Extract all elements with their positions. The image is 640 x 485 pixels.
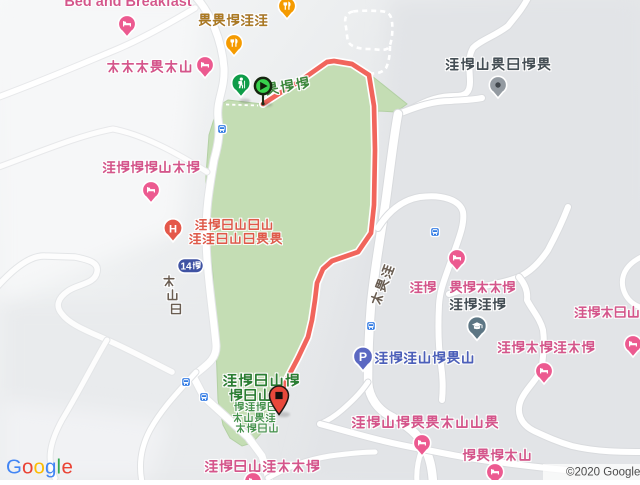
svg-text:G: G [6,456,22,479]
svg-text:14: 14 [180,262,192,273]
svg-text:o: o [22,456,33,479]
svg-text:l: l [57,456,62,479]
svg-text:H: H [169,223,177,235]
svg-text:©2020 Google: ©2020 Google [566,467,640,479]
svg-text:o: o [34,456,45,479]
svg-text:Bed and Breakfast: Bed and Breakfast [64,0,191,10]
svg-text:g: g [45,456,56,479]
svg-text:P: P [359,350,367,364]
svg-text:e: e [62,456,73,479]
